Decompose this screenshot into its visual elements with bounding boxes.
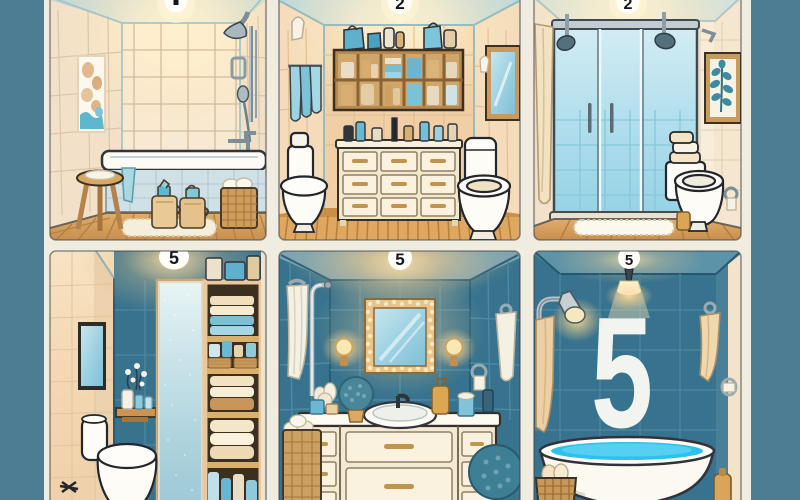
svg-text:5: 5 xyxy=(625,252,633,269)
svg-text:2: 2 xyxy=(395,0,404,13)
svg-text:2: 2 xyxy=(624,0,633,13)
svg-text:5: 5 xyxy=(395,250,404,269)
